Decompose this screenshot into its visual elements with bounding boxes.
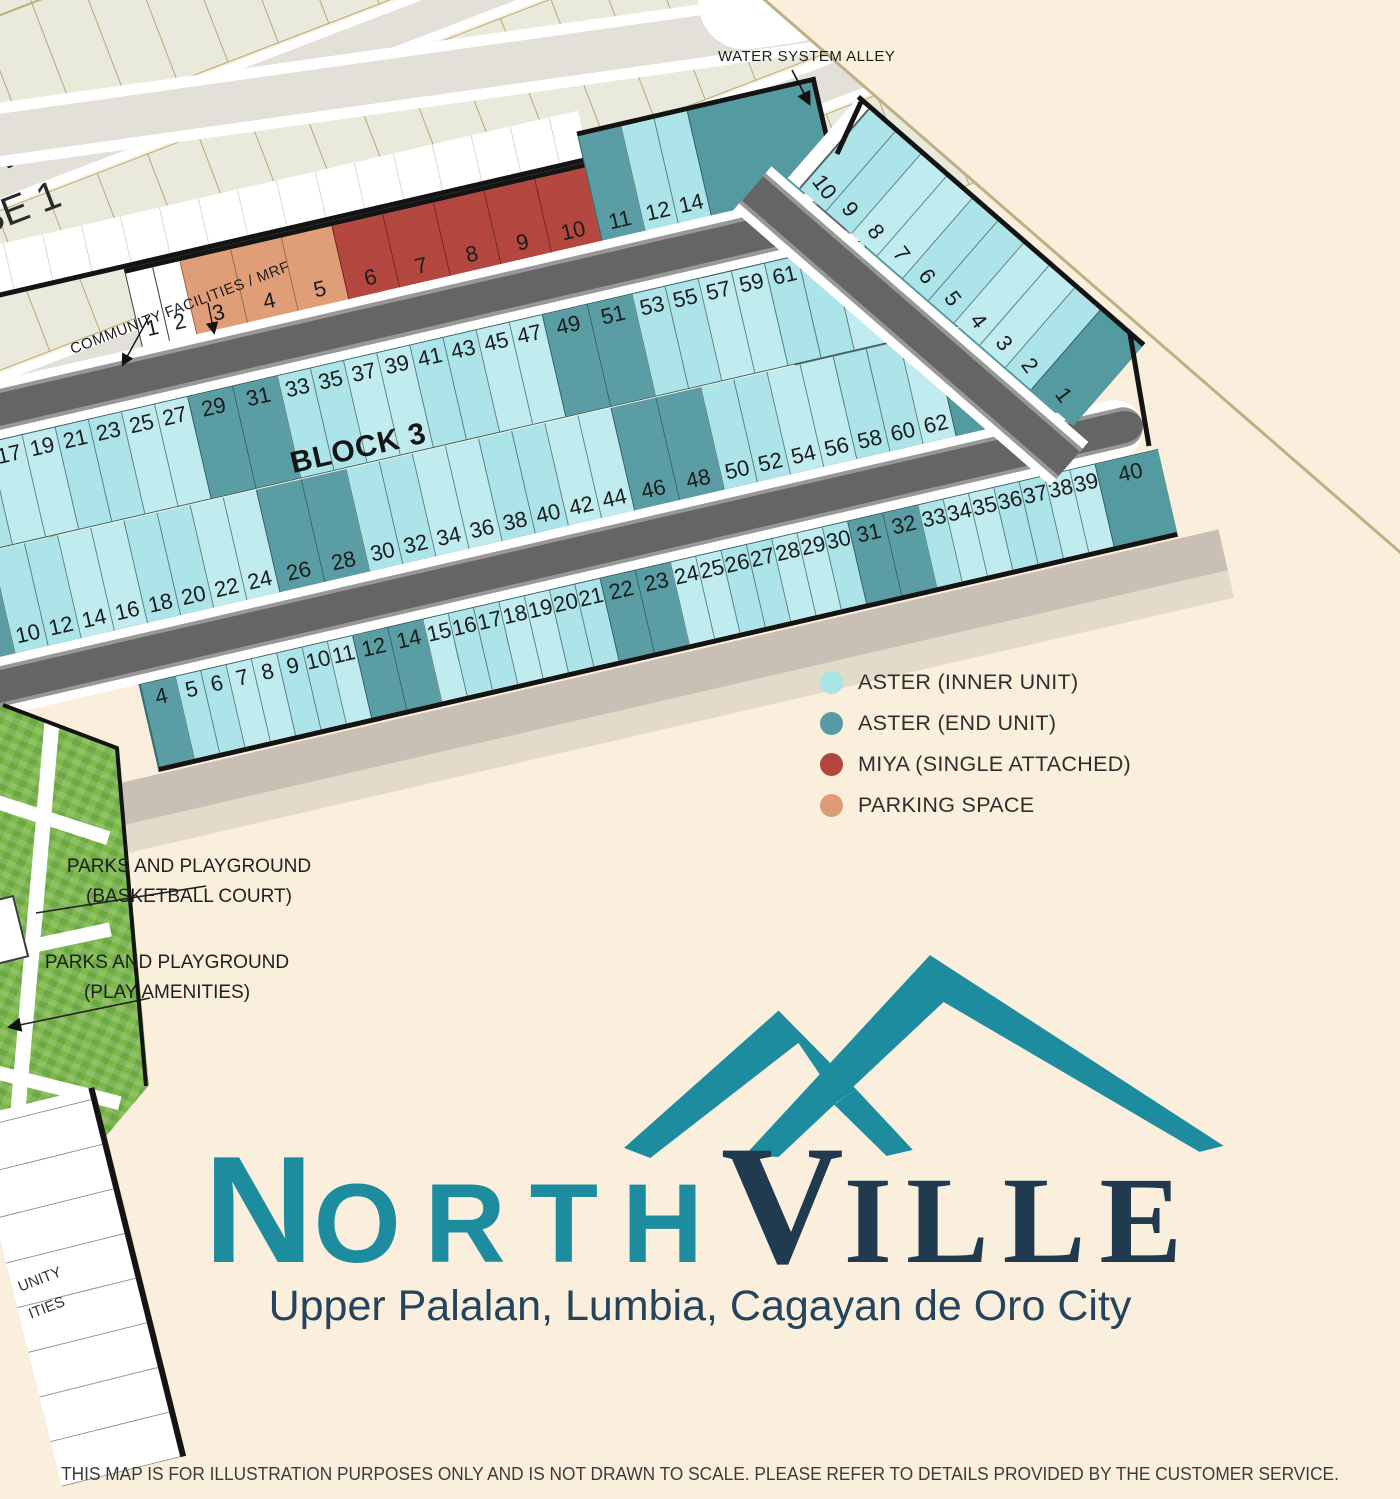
legend-item: MIYA (SINGLE ATTACHED) [820, 744, 1131, 785]
lot-number: 49 [544, 308, 594, 343]
legend-label: ASTER (END UNIT) [858, 711, 1056, 736]
wordmark-ville-initial: V [721, 1120, 844, 1290]
wordmark-ville-rest: ILLE [844, 1159, 1196, 1283]
legend-item: PARKING SPACE [820, 785, 1131, 826]
lot-number: 4 [141, 680, 181, 713]
legend-label: ASTER (INNER UNIT) [858, 670, 1078, 695]
disclaimer: THIS MAP IS FOR ILLUSTRATION PURPOSES ON… [28, 1464, 1372, 1485]
legend-swatch [820, 671, 843, 694]
lot-number: 12 [354, 631, 394, 664]
legend-item: ASTER (INNER UNIT) [820, 662, 1131, 703]
lot-number: 11 [596, 203, 644, 238]
legend-item: ASTER (END UNIT) [820, 703, 1131, 744]
legend-label: MIYA (SINGLE ATTACHED) [858, 752, 1131, 777]
wordmark-north-rest: ORTH [314, 1168, 727, 1280]
parks-play-label: PARKS AND PLAYGROUND (PLAY AMENITIES) [32, 948, 302, 1009]
site-development-map: RVILLE SE 1 BLOCK 4 12345678910 11121415… [0, 0, 1400, 1499]
parks-basketball-label: PARKS AND PLAYGROUND (BASKETBALL COURT) [54, 852, 324, 913]
legend-swatch [820, 712, 843, 735]
park-path [0, 785, 110, 845]
wordmark: NORTHVILLE [0, 1120, 1400, 1290]
legend: ASTER (INNER UNIT)ASTER (END UNIT)MIYA (… [820, 662, 1131, 826]
lot-number: 26 [274, 554, 324, 589]
water-system-alley-label: WATER SYSTEM ALLEY [718, 48, 895, 65]
lot-number: 32 [397, 528, 435, 561]
lot-number: 46 [629, 472, 679, 507]
tagline: Upper Palalan, Lumbia, Cagayan de Oro Ci… [0, 1282, 1400, 1331]
lot-number: 51 [588, 297, 638, 332]
legend-swatch [820, 794, 843, 817]
lot-number: 31 [849, 517, 889, 550]
lot-number: 31 [234, 379, 284, 414]
lot-number: 14 [389, 623, 429, 656]
lot-number: 32 [884, 508, 924, 541]
basketball-court [0, 895, 29, 965]
lot-number: 28 [319, 543, 369, 578]
lot-number: 22 [601, 574, 641, 607]
lot-number: 29 [189, 390, 239, 425]
legend-label: PARKING SPACE [858, 793, 1034, 818]
wordmark-north-initial: N [204, 1134, 314, 1286]
lot-number: 23 [636, 566, 676, 599]
legend-swatch [820, 753, 843, 776]
